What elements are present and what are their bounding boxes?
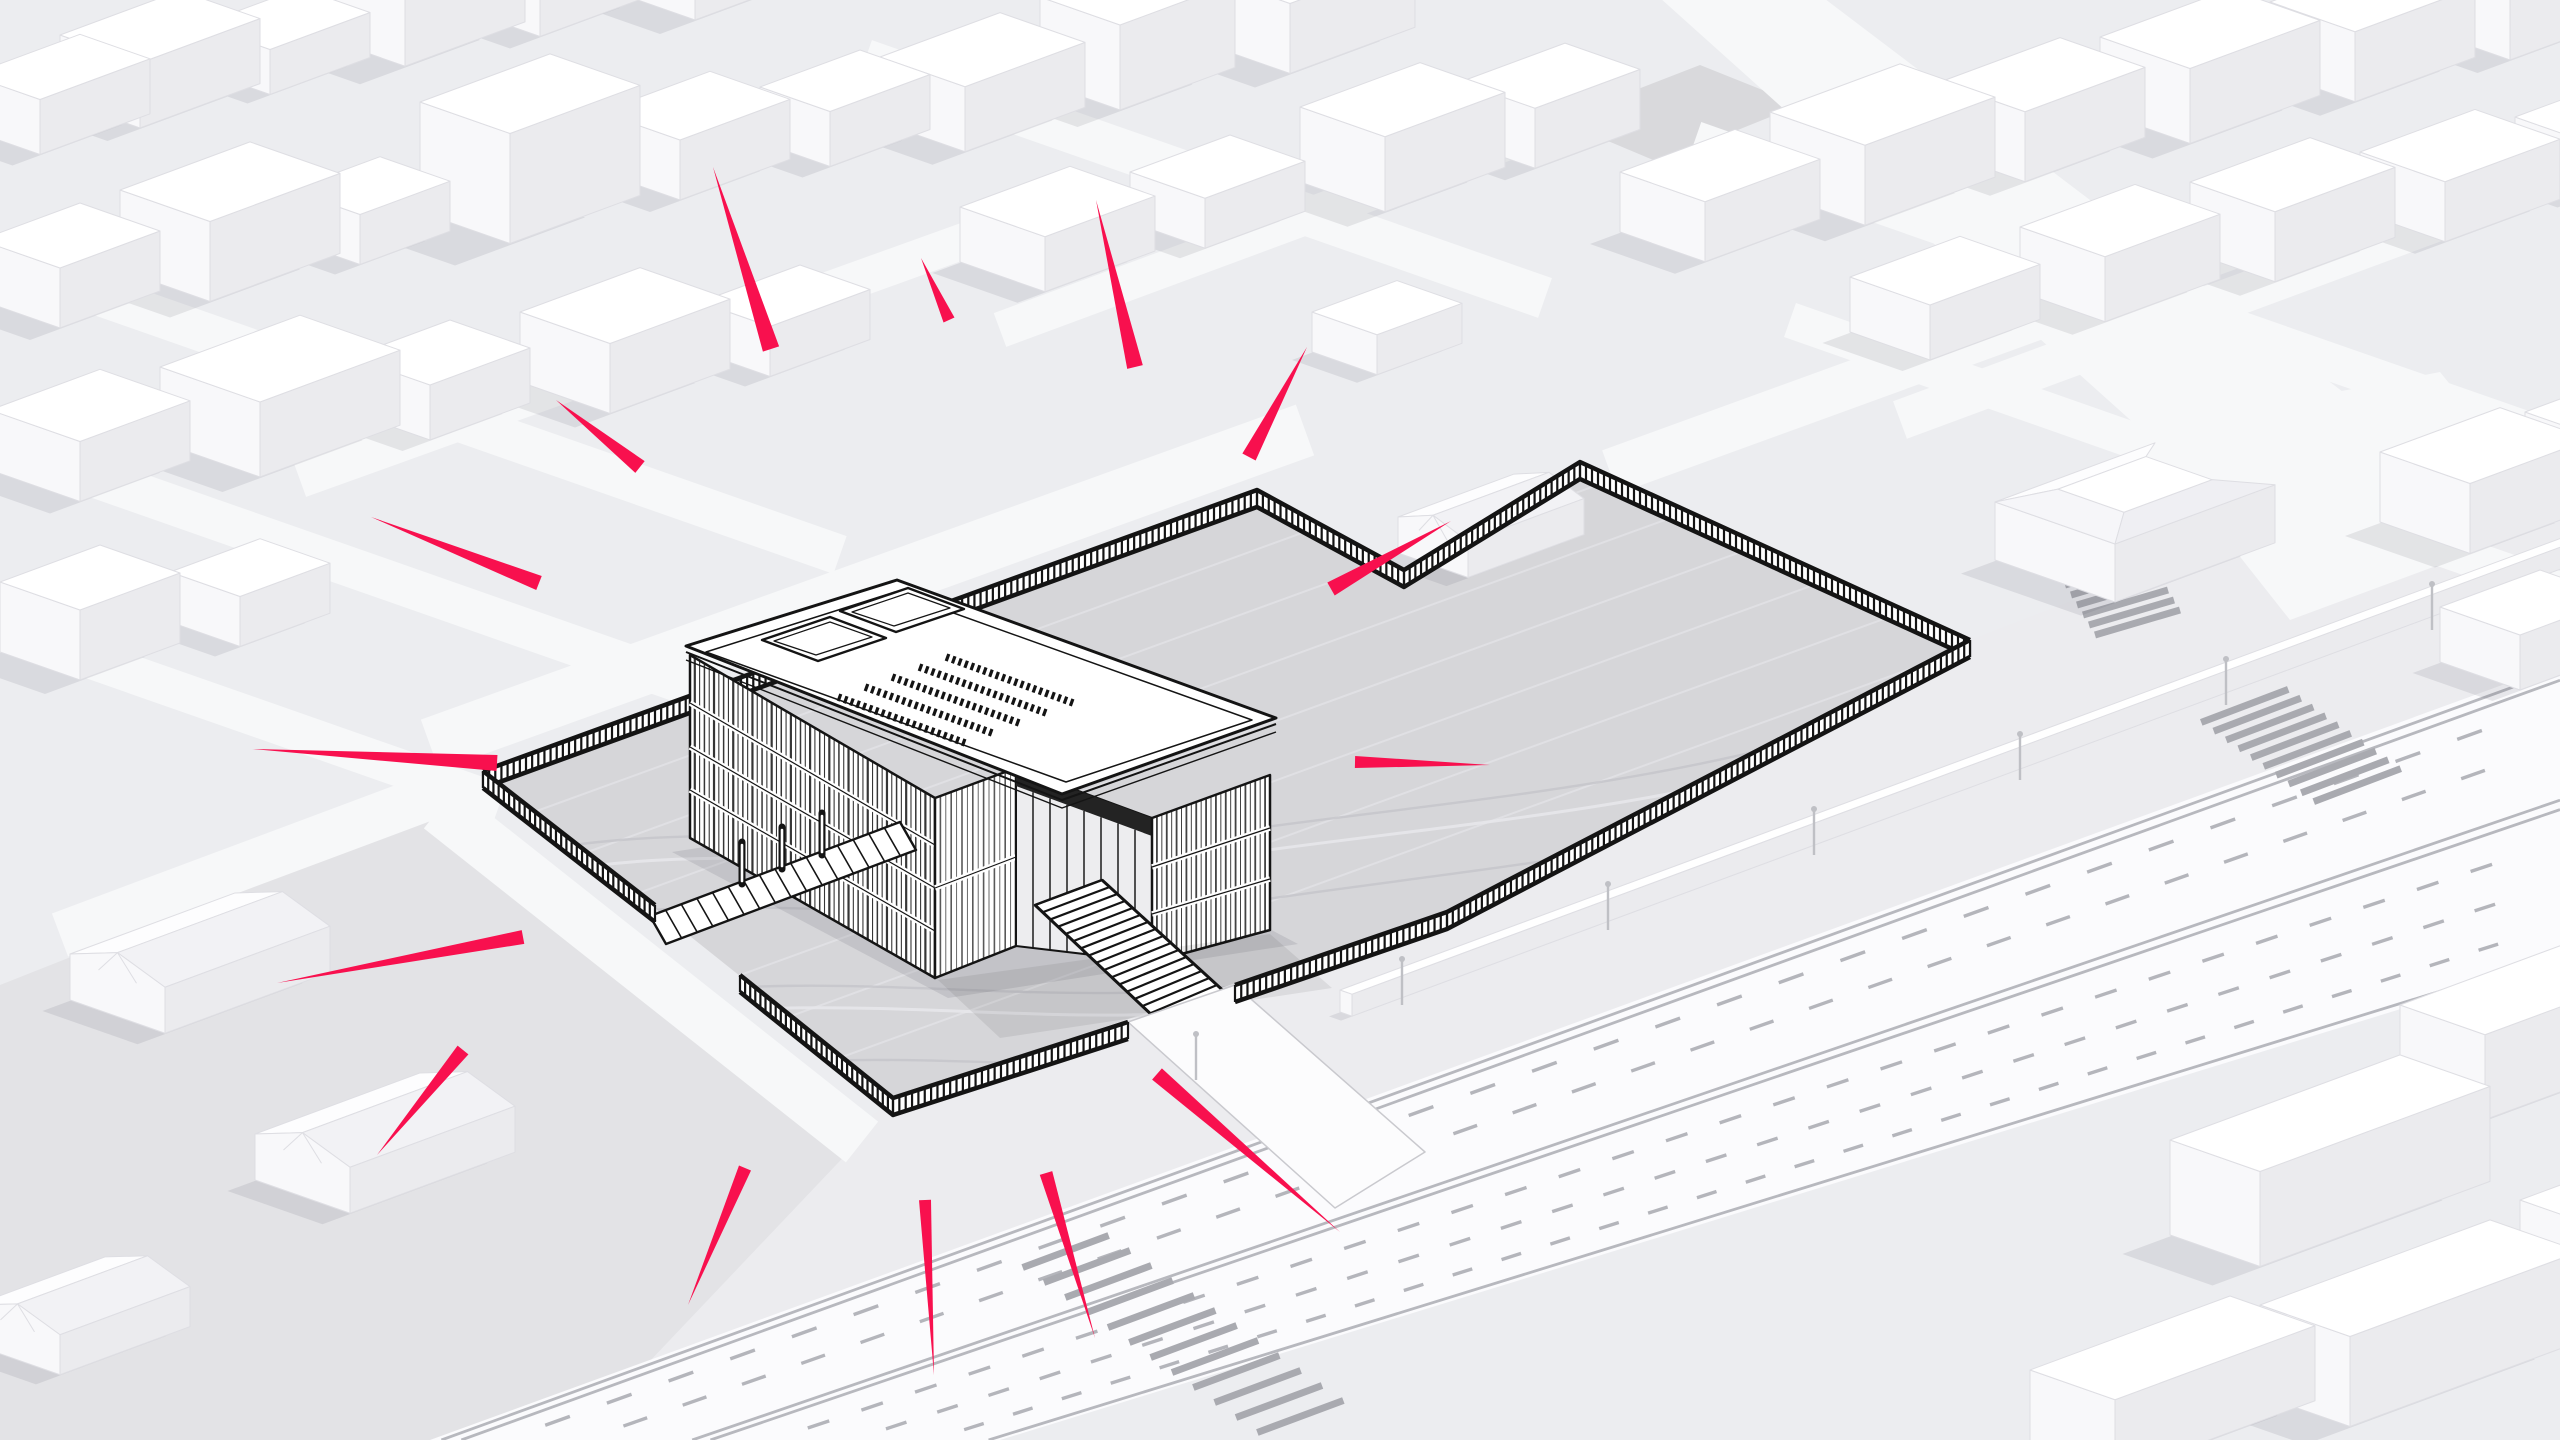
lamp-head <box>1811 806 1817 812</box>
lamp-head <box>2429 581 2435 587</box>
lamp-head <box>2223 656 2229 662</box>
lamp-head <box>2017 731 2023 737</box>
masterplan-3d-diagram <box>0 0 2560 1440</box>
lamp-head <box>1605 881 1611 887</box>
lamp-head <box>1193 1031 1199 1037</box>
masterplan-diagram-stage <box>0 0 2560 1440</box>
lamp-head <box>1399 956 1405 962</box>
